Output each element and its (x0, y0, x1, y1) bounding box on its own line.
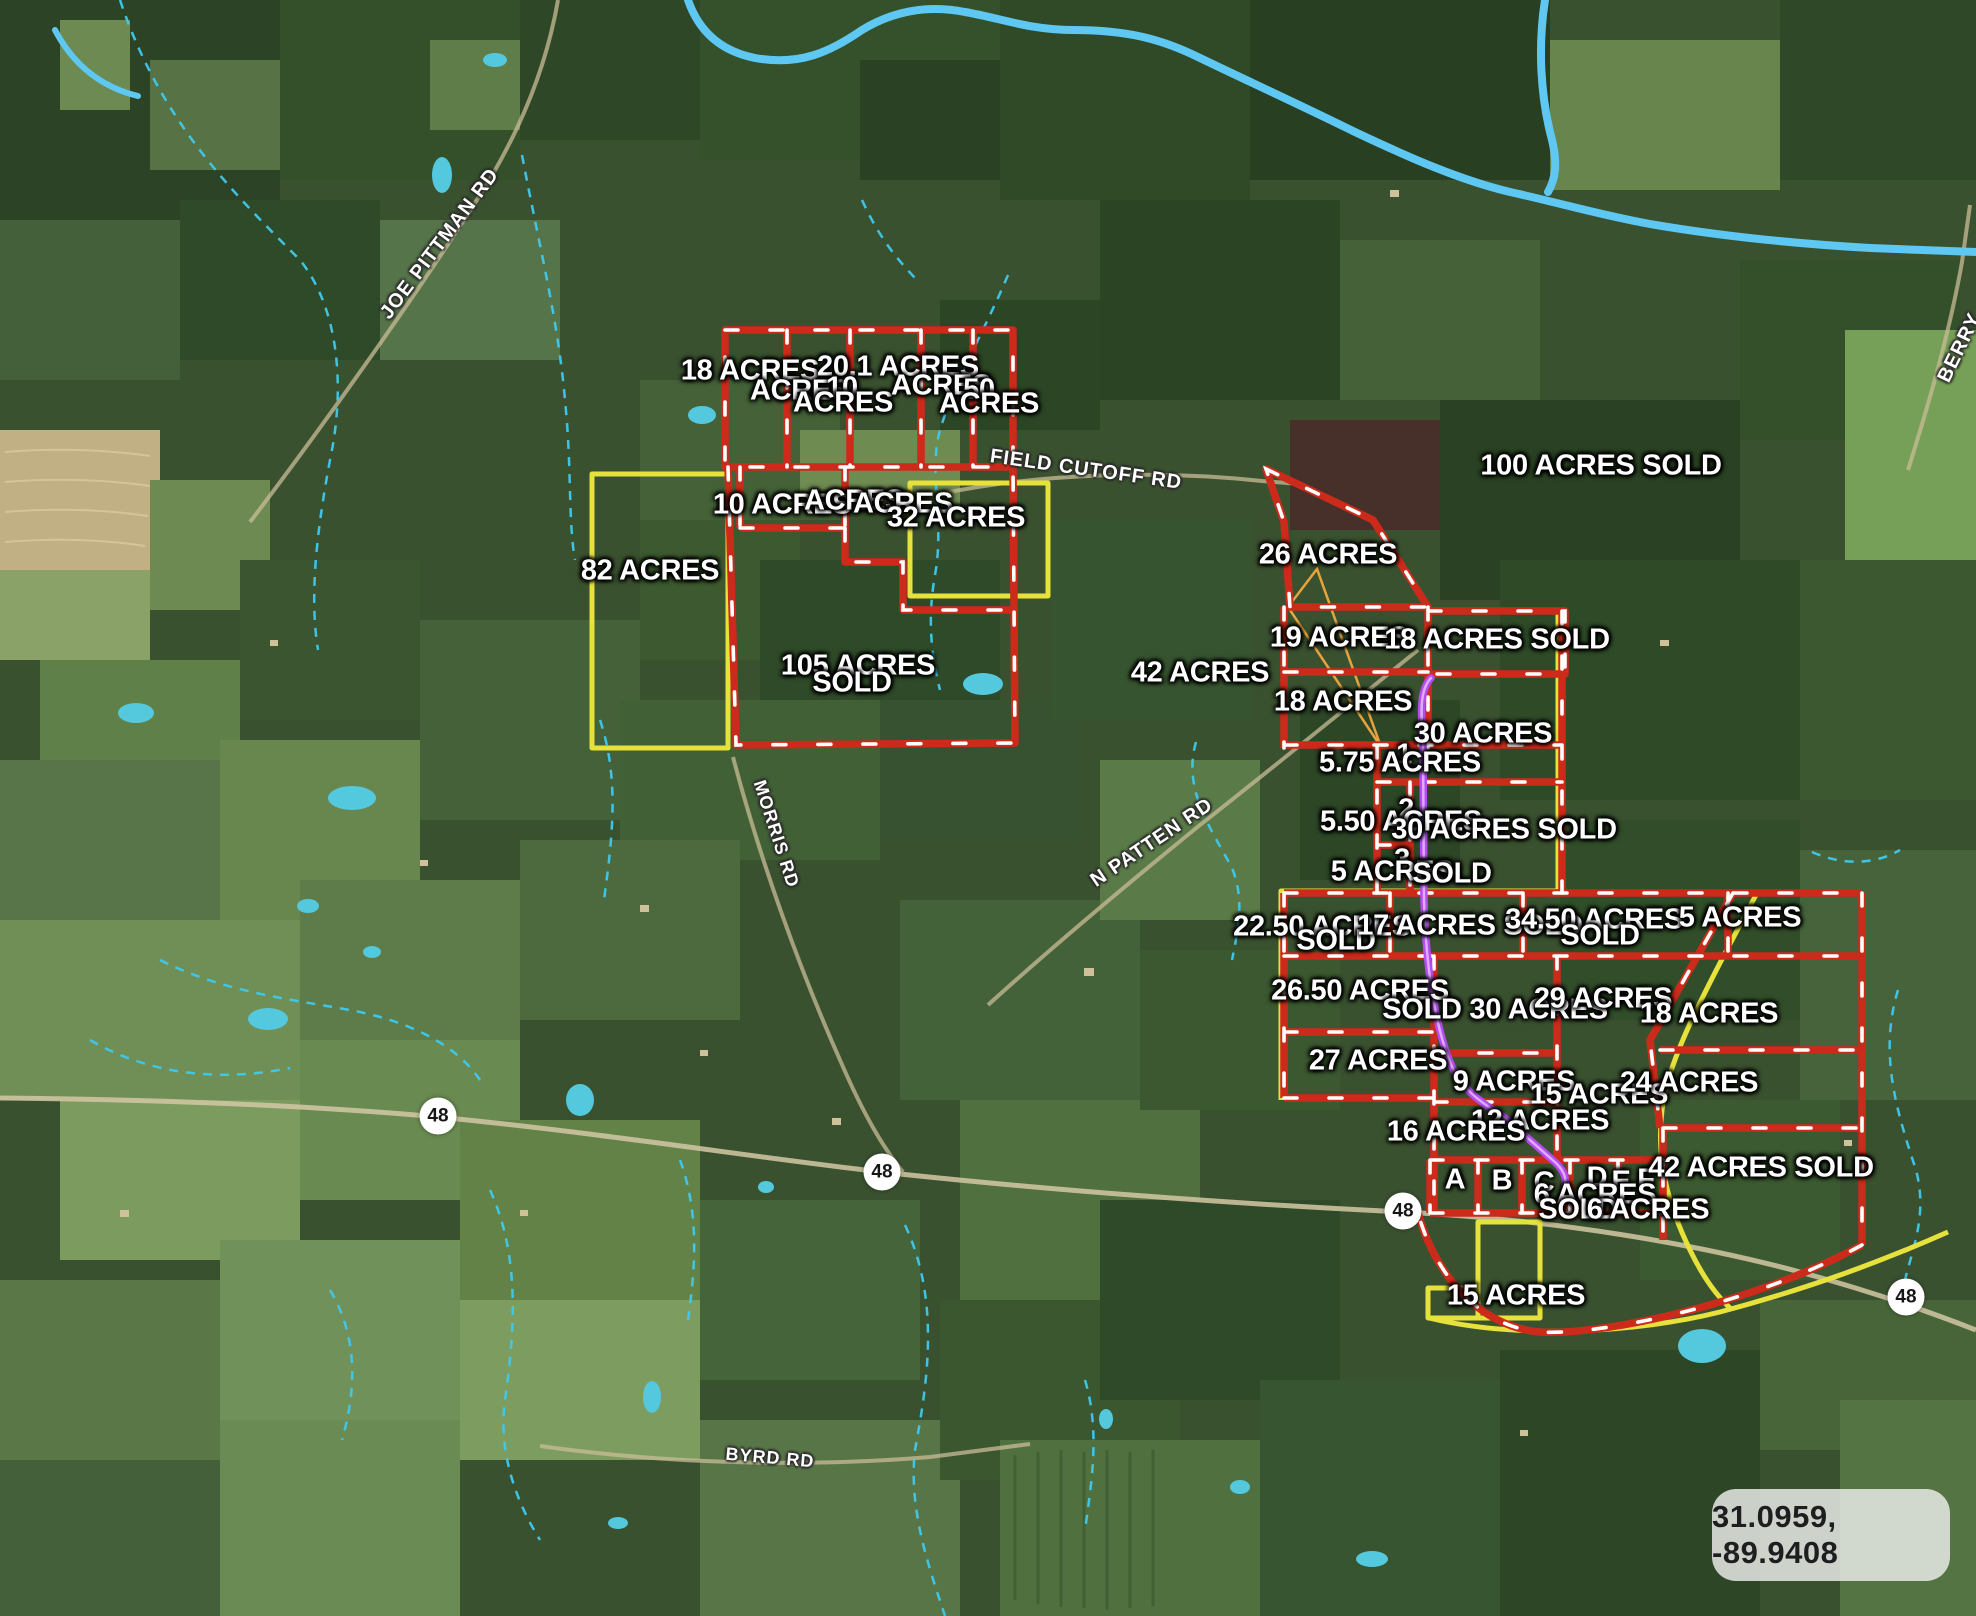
parcel-label: 6 ACRES (1587, 1194, 1710, 1227)
parcel-label: 18 ACRES SOLD (1384, 624, 1609, 657)
highway-48-shield: 48 (1385, 1193, 1422, 1230)
coordinates-badge: 31.0959, -89.9408 (1712, 1489, 1950, 1581)
parcel-label: 16 ACRES (1387, 1116, 1525, 1149)
parcel-label: 100 ACRES SOLD (1480, 450, 1721, 483)
road-label: FIELD CUTOFF RD (989, 445, 1184, 495)
parcel-label: 15 ACRES (1447, 1280, 1585, 1313)
parcel-label: SOLD (1412, 858, 1491, 891)
road-label: BYRD RD (725, 1444, 816, 1473)
parcel-label: A (1445, 1164, 1466, 1197)
parcel-label: SOLD (812, 667, 891, 700)
parcel-label: 42 ACRES SOLD (1648, 1152, 1873, 1185)
parcel-label: 27 ACRES (1309, 1045, 1447, 1078)
parcel-label: SOLD (1560, 920, 1639, 953)
road-label: BERRY (1933, 310, 1976, 387)
parcel-label: 18 ACRES (1274, 686, 1412, 719)
parcel-label: 5.75 ACRES (1319, 747, 1481, 780)
highway-48-shield: 48 (420, 1098, 457, 1135)
parcel-label: 18 ACRES (1640, 998, 1778, 1031)
road-label: MORRIS RD (749, 777, 804, 890)
road-label: JOE PITTMAN RD (376, 164, 504, 324)
parcel-label: ACRES (939, 388, 1039, 421)
road-label: N PATTEN RD (1087, 794, 1218, 893)
parcel-label: 32 ACRES (887, 502, 1025, 535)
highway-48-shield: 48 (1888, 1279, 1925, 1316)
parcel-label: 30 ACRES SOLD (1391, 814, 1616, 847)
map-labels-layer: 18 ACRES20.1 ACRESACRES10ACRESACRES50ACR… (0, 0, 1976, 1616)
parcel-label: 82 ACRES (581, 555, 719, 588)
parcel-label: ACRES (793, 387, 893, 420)
map-canvas[interactable]: 18 ACRES20.1 ACRESACRES10ACRESACRES50ACR… (0, 0, 1976, 1616)
parcel-label: 24 ACRES (1620, 1067, 1758, 1100)
parcel-label: 42 ACRES (1131, 657, 1269, 690)
parcel-label: 5 ACRES (1679, 902, 1802, 935)
parcel-label: B (1492, 1165, 1513, 1198)
highway-48-shield: 48 (864, 1154, 901, 1191)
coordinates-text: 31.0959, -89.9408 (1712, 1499, 1950, 1571)
parcel-label: 26 ACRES (1259, 539, 1397, 572)
